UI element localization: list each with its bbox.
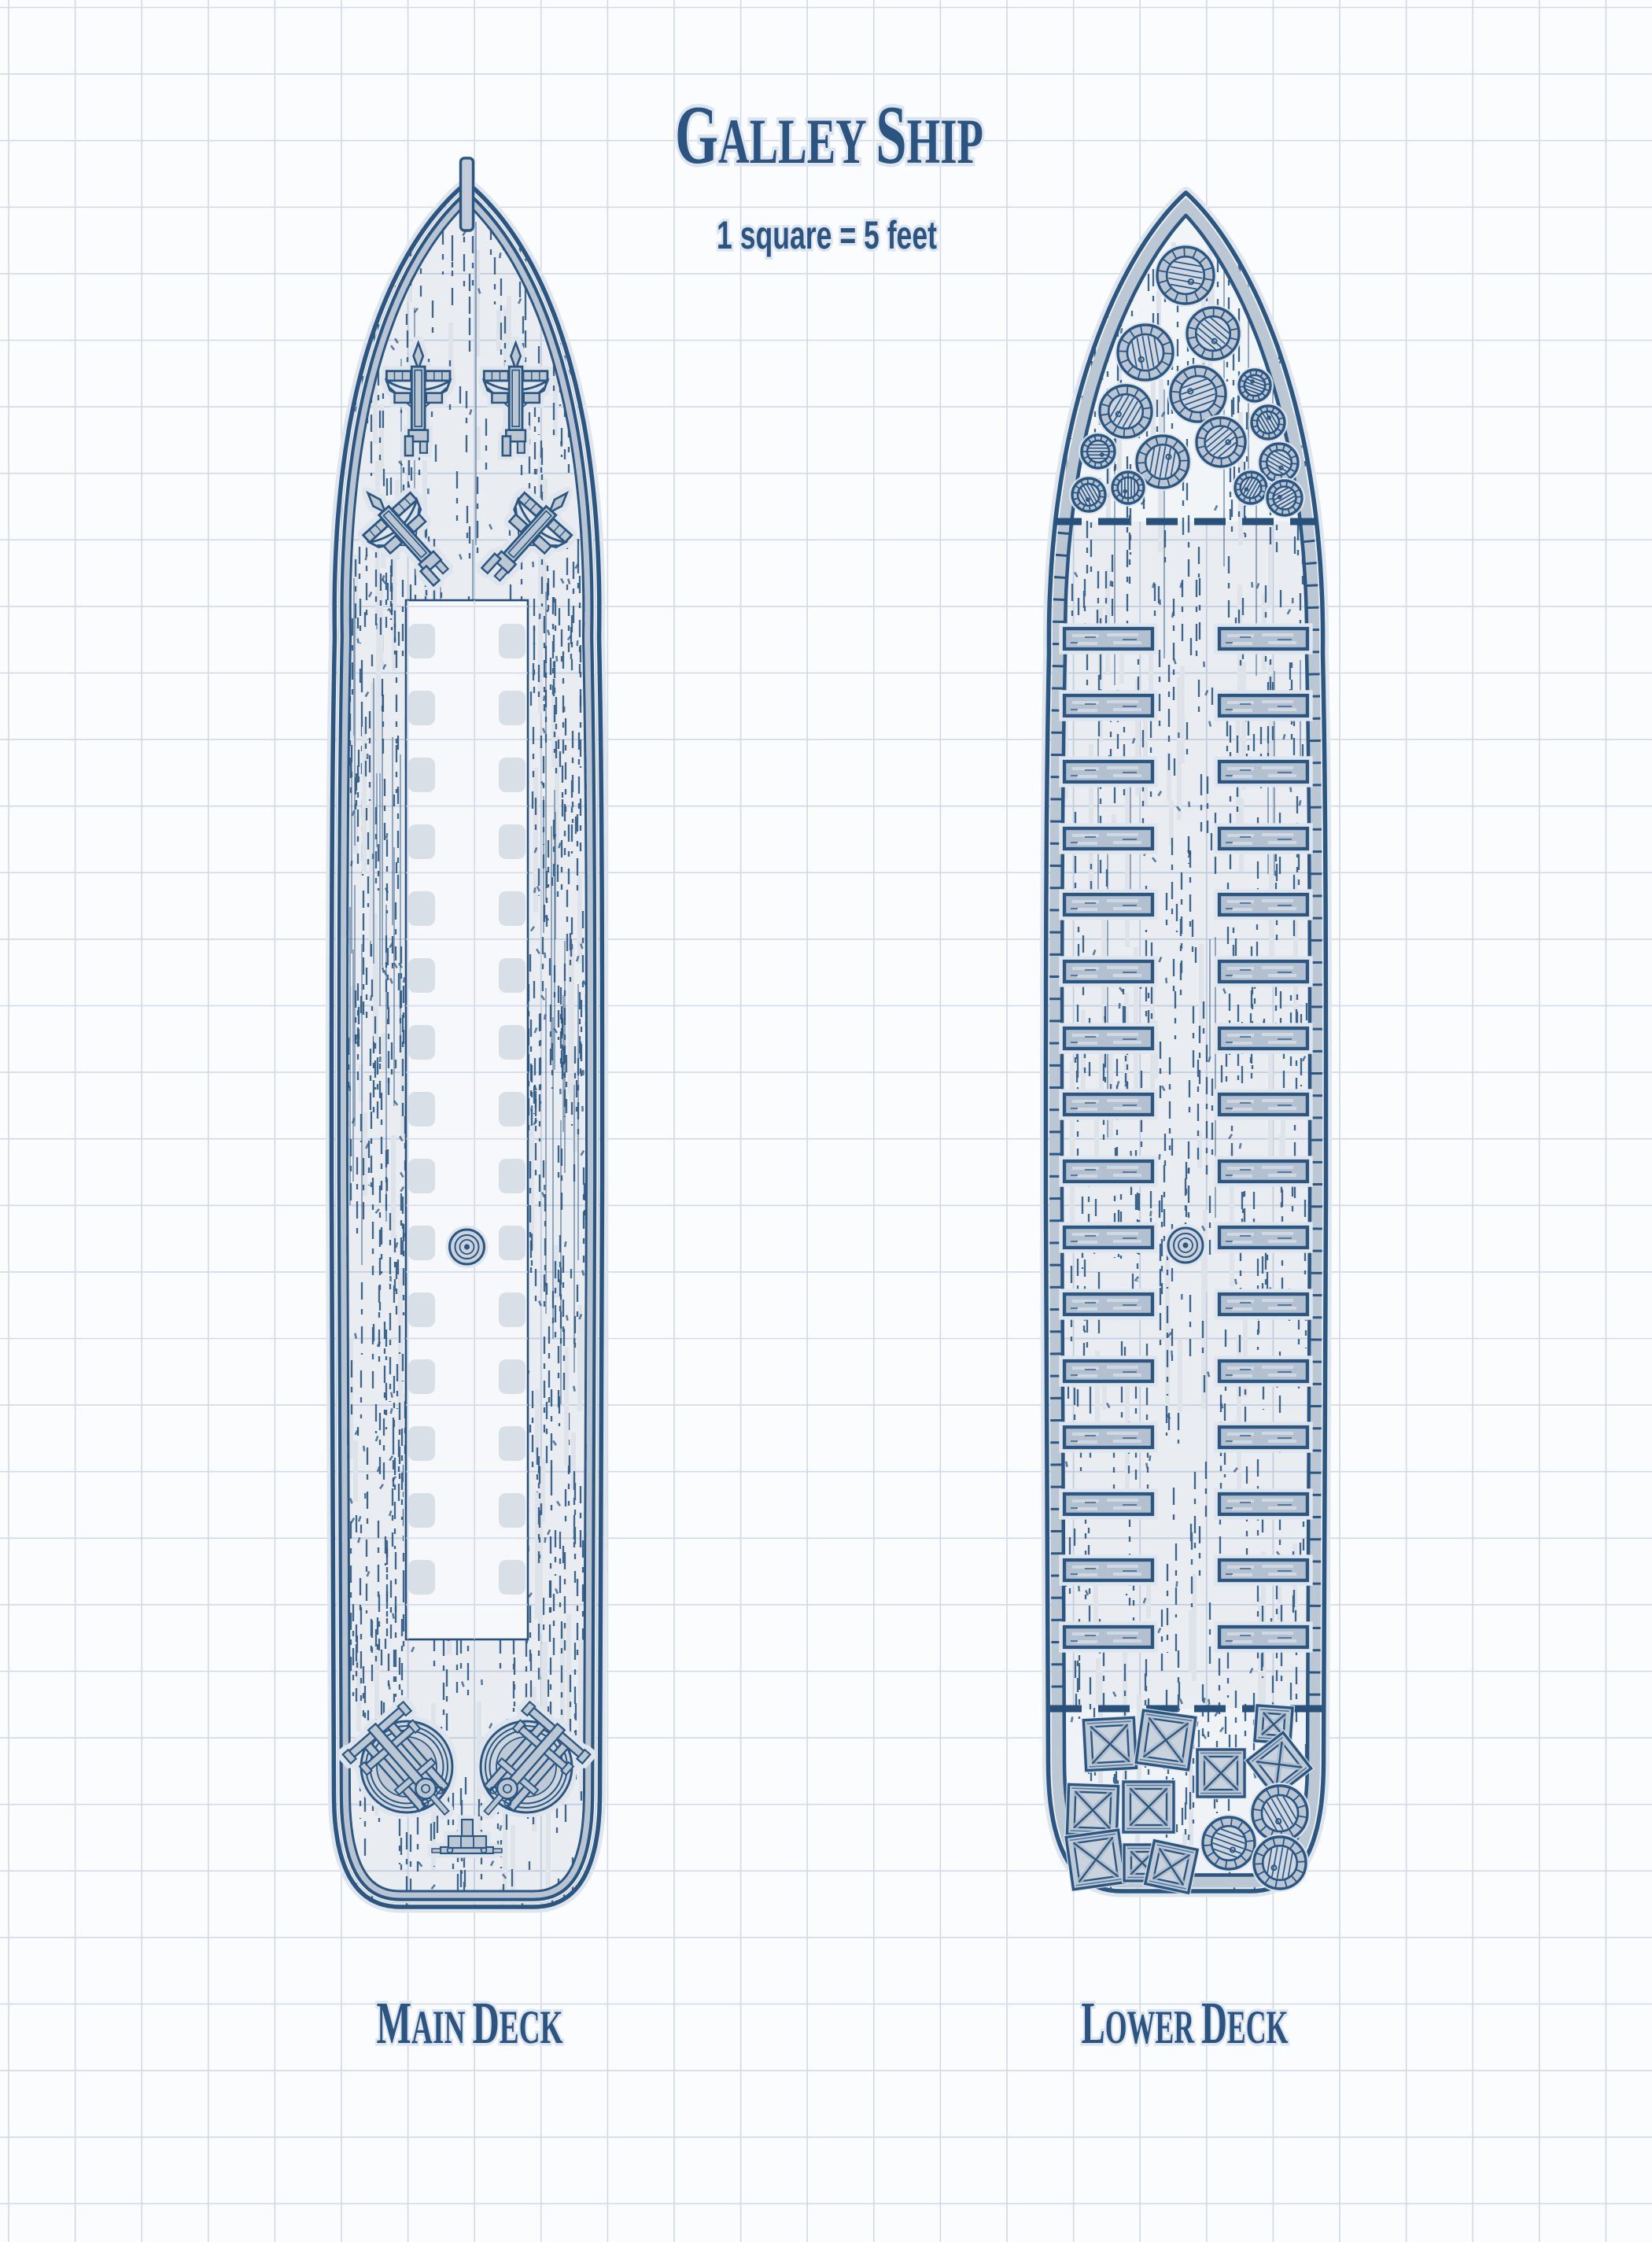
svg-text:1 square = 5 feet: 1 square = 5 feet [717,213,937,257]
